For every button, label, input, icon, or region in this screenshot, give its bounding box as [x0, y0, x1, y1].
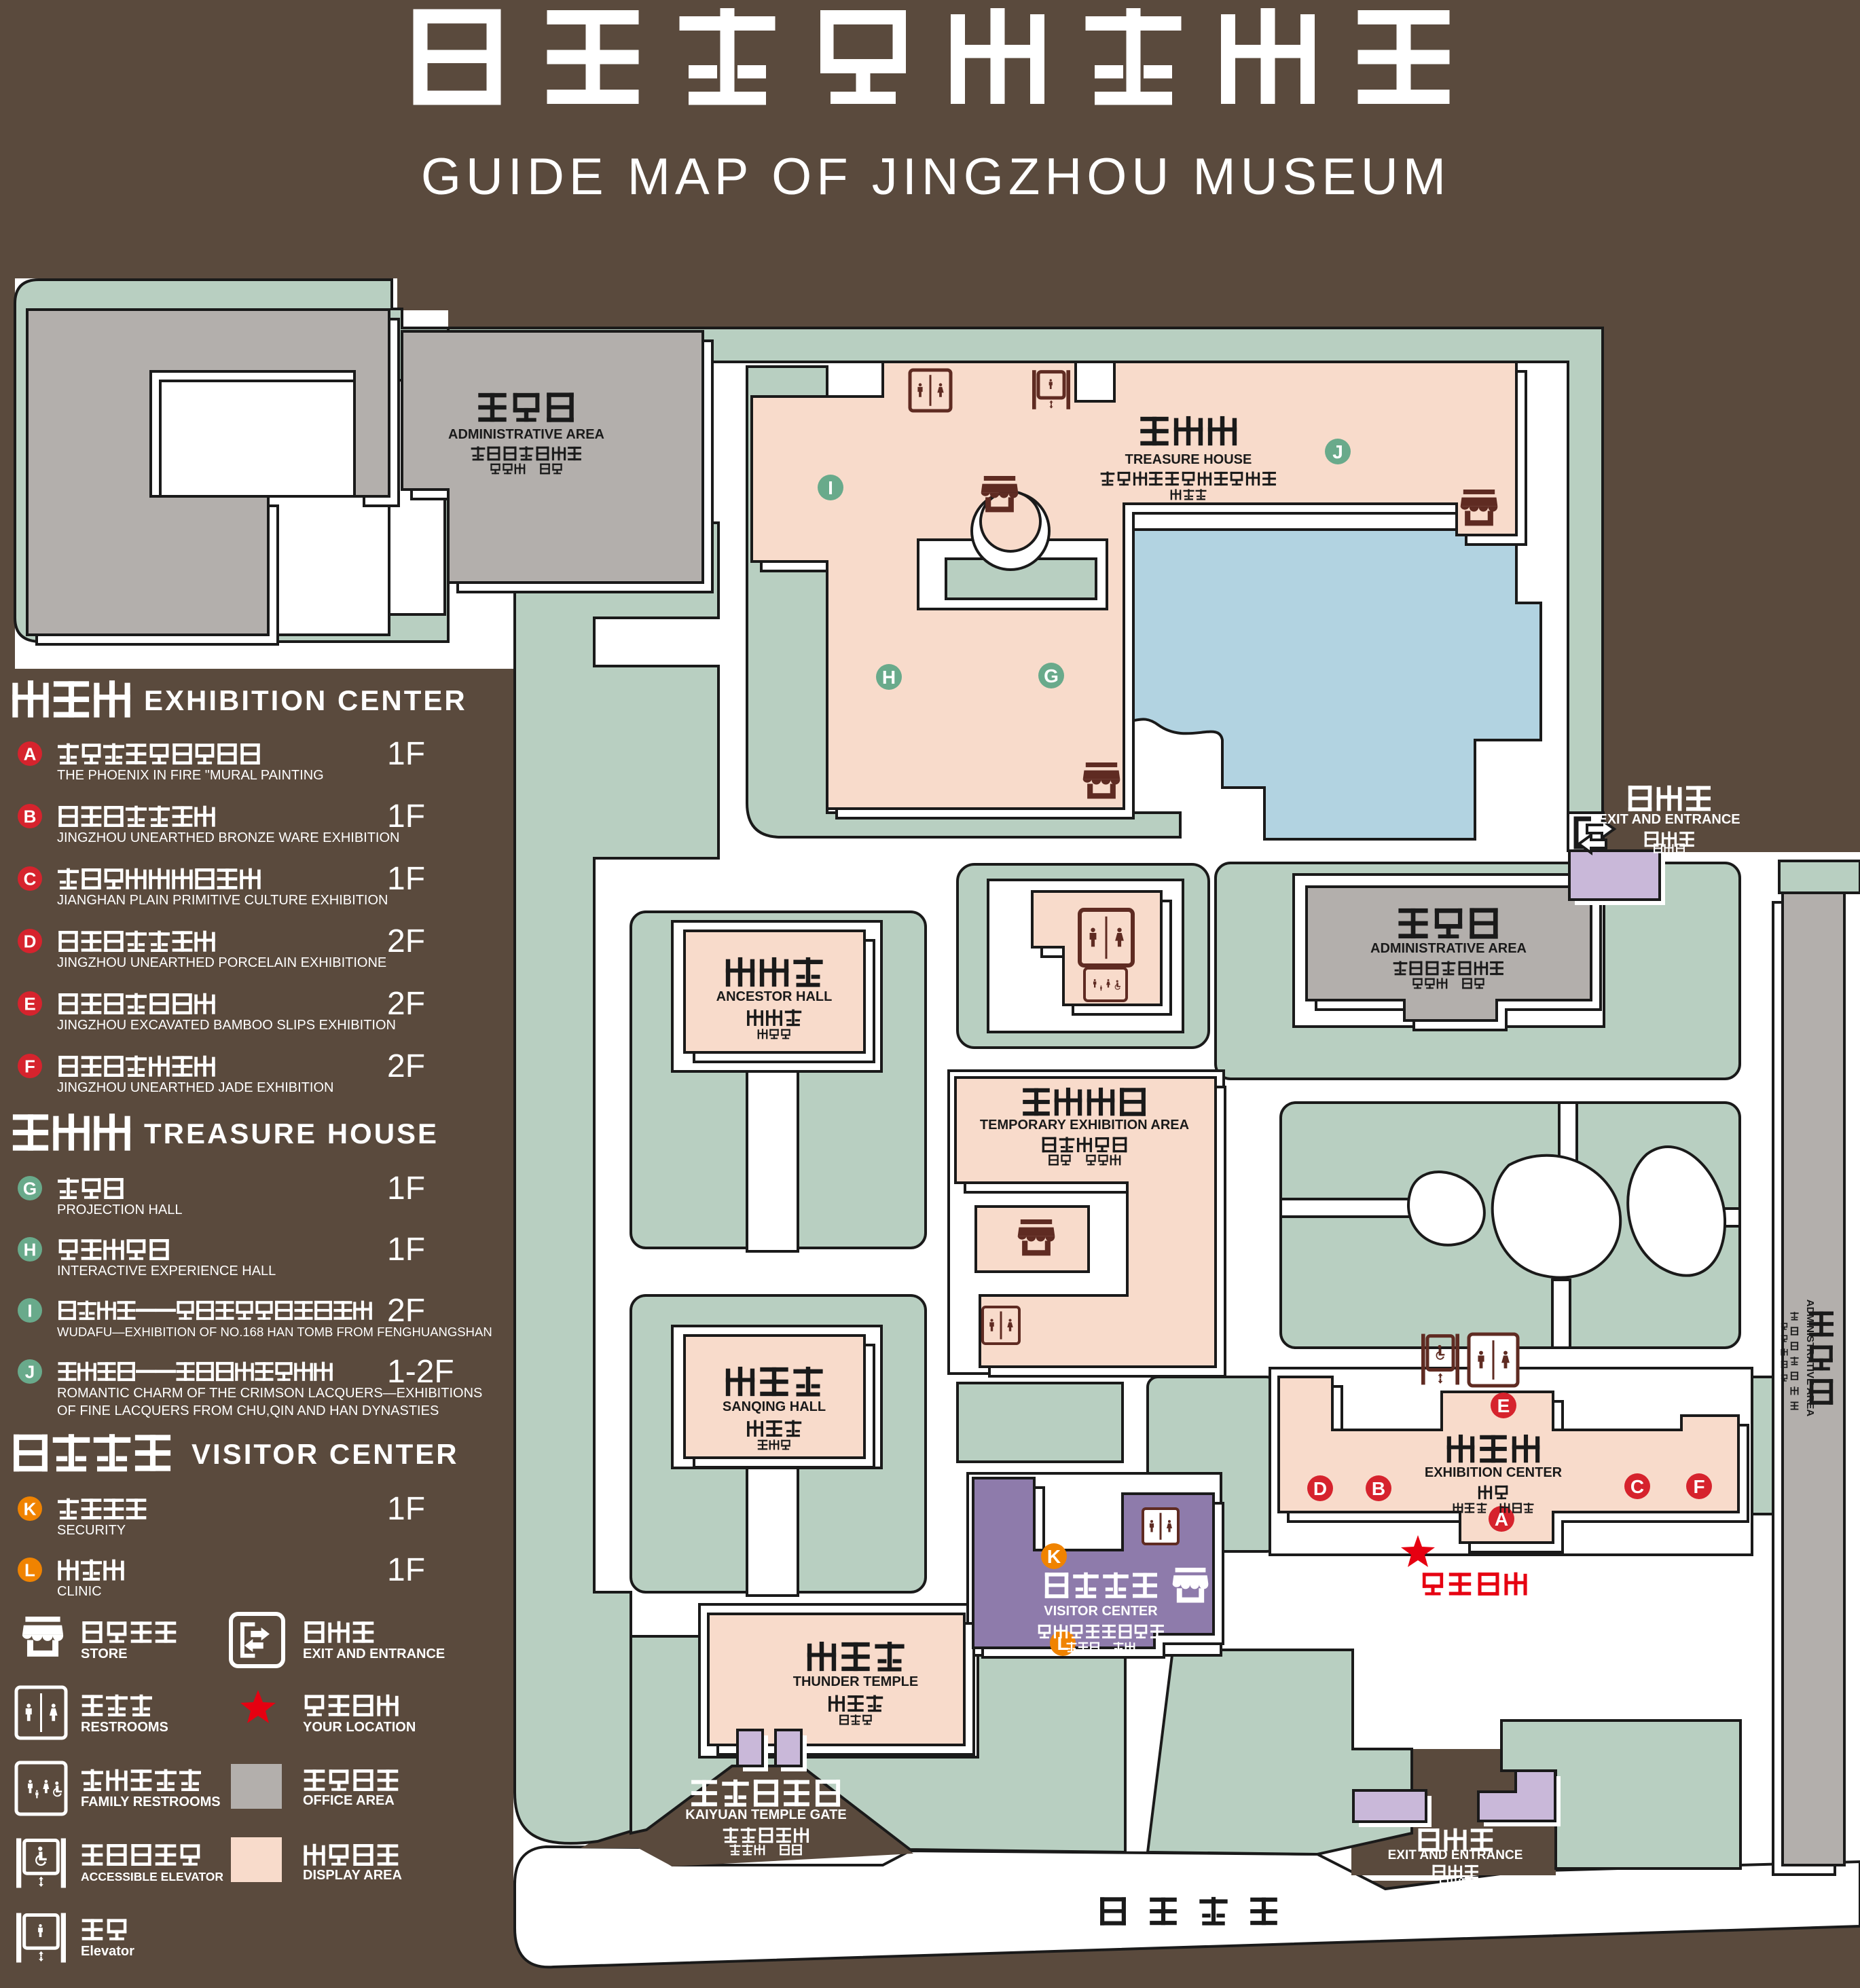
svg-text:1F: 1F — [387, 1171, 425, 1207]
svg-text:ADMINISTRATIVE AREA: ADMINISTRATIVE AREA — [448, 427, 604, 442]
svg-text:THUNDER TEMPLE: THUNDER TEMPLE — [793, 1674, 918, 1689]
svg-text:B: B — [24, 806, 37, 826]
svg-text:A: A — [1495, 1509, 1508, 1530]
svg-text:VISITOR CENTER: VISITOR CENTER — [192, 1438, 459, 1470]
svg-text:JINGZHOU UNEARTHED BRONZE WARE: JINGZHOU UNEARTHED BRONZE WARE EXHIBITIO… — [57, 830, 399, 845]
svg-text:D: D — [1313, 1478, 1327, 1499]
svg-text:2F: 2F — [387, 1293, 425, 1329]
svg-text:C: C — [1630, 1476, 1644, 1497]
svg-text:A: A — [24, 743, 37, 764]
svg-text:ANCESTOR HALL: ANCESTOR HALL — [716, 989, 833, 1004]
svg-text:WUDAFU—EXHIBITION OF NO.168 HA: WUDAFU—EXHIBITION OF NO.168 HAN TOMB FRO… — [57, 1325, 492, 1339]
svg-text:G: G — [1044, 665, 1059, 686]
svg-text:FAMILY RESTROOMS: FAMILY RESTROOMS — [81, 1794, 221, 1809]
svg-text:ADMINISTRATIVE AREA: ADMINISTRATIVE AREA — [1804, 1300, 1816, 1417]
svg-text:E: E — [24, 993, 35, 1014]
svg-text:B: B — [1372, 1478, 1385, 1499]
svg-text:TREASURE HOUSE: TREASURE HOUSE — [1125, 452, 1252, 467]
svg-text:F: F — [24, 1056, 35, 1076]
svg-text:2F: 2F — [387, 1048, 425, 1084]
svg-text:EXHIBITION CENTER: EXHIBITION CENTER — [144, 684, 467, 716]
svg-text:JIANGHAN PLAIN PRIMITIVE CULTU: JIANGHAN PLAIN PRIMITIVE CULTURE EXHIBIT… — [57, 893, 388, 908]
svg-text:JINGZHOU UNEARTHED PORCELAIN E: JINGZHOU UNEARTHED PORCELAIN EXHIBITIONE — [57, 955, 386, 970]
svg-text:PROJECTION HALL: PROJECTION HALL — [57, 1202, 182, 1217]
svg-text:L: L — [24, 1560, 35, 1580]
svg-text:J: J — [1332, 441, 1343, 462]
svg-text:1F: 1F — [387, 1232, 425, 1268]
svg-text:I: I — [27, 1300, 32, 1321]
svg-text:EXHIBITION CENTER: EXHIBITION CENTER — [1425, 1465, 1563, 1480]
svg-text:1F: 1F — [387, 1552, 425, 1588]
svg-text:H: H — [882, 667, 896, 688]
svg-text:C: C — [24, 868, 37, 889]
svg-text:TREASURE HOUSE: TREASURE HOUSE — [144, 1118, 439, 1149]
svg-text:E: E — [1497, 1395, 1510, 1416]
svg-text:G: G — [23, 1178, 37, 1198]
svg-text:K: K — [1047, 1546, 1061, 1567]
svg-text:OFFICE AREA: OFFICE AREA — [303, 1793, 395, 1808]
svg-text:YOUR LOCATION: YOUR LOCATION — [303, 1720, 416, 1735]
svg-text:I: I — [828, 477, 833, 498]
svg-text:K: K — [24, 1498, 37, 1519]
svg-text:STORE: STORE — [81, 1646, 128, 1661]
svg-text:1-2F: 1-2F — [387, 1354, 454, 1390]
svg-text:F: F — [1693, 1476, 1704, 1497]
svg-text:GUIDE MAP OF JINGZHOU MUSEUM: GUIDE MAP OF JINGZHOU MUSEUM — [421, 148, 1451, 206]
svg-text:J: J — [25, 1361, 35, 1382]
svg-text:SANQING HALL: SANQING HALL — [723, 1399, 826, 1414]
svg-text:OF FINE LACQUERS FROM CHU,QIN: OF FINE LACQUERS FROM CHU,QIN AND HAN DY… — [57, 1403, 439, 1418]
svg-text:ACCESSIBLE ELEVATOR: ACCESSIBLE ELEVATOR — [81, 1870, 223, 1883]
svg-text:DISPLAY AREA: DISPLAY AREA — [303, 1868, 402, 1883]
svg-text:1F: 1F — [387, 1491, 425, 1527]
svg-text:EXIT AND ENTRANCE: EXIT AND ENTRANCE — [1388, 1848, 1523, 1862]
svg-text:2F: 2F — [387, 923, 425, 959]
svg-text:2F: 2F — [387, 986, 425, 1022]
svg-text:JINGZHOU UNEARTHED JADE EXHIBI: JINGZHOU UNEARTHED JADE EXHIBITION — [57, 1080, 333, 1095]
svg-text:TEMPORARY EXHIBITION AREA: TEMPORARY EXHIBITION AREA — [980, 1118, 1189, 1133]
svg-text:1F: 1F — [387, 861, 425, 897]
svg-text:THE PHOENIX IN FIRE "MURAL PAI: THE PHOENIX IN FIRE "MURAL PAINTING — [57, 768, 324, 783]
svg-text:RESTROOMS: RESTROOMS — [81, 1720, 168, 1735]
svg-text:1F: 1F — [387, 798, 425, 834]
svg-text:EXIT AND ENTRANCE: EXIT AND ENTRANCE — [303, 1646, 445, 1661]
svg-text:1F: 1F — [387, 736, 425, 772]
svg-text:JINGZHOU EXCAVATED BAMBOO SLIP: JINGZHOU EXCAVATED BAMBOO SLIPS EXHIBITI… — [57, 1018, 396, 1033]
svg-text:VISITOR CENTER: VISITOR CENTER — [1044, 1604, 1158, 1619]
svg-text:D: D — [24, 931, 37, 951]
svg-text:EXIT AND ENTRANCE: EXIT AND ENTRANCE — [1598, 812, 1740, 827]
svg-text:INTERACTIVE EXPERIENCE HALL: INTERACTIVE EXPERIENCE HALL — [57, 1264, 276, 1278]
svg-text:CLINIC: CLINIC — [57, 1584, 102, 1599]
svg-text:Elevator: Elevator — [81, 1944, 134, 1959]
svg-text:KAIYUAN TEMPLE GATE: KAIYUAN TEMPLE GATE — [685, 1807, 846, 1822]
svg-text:ADMINISTRATIVE AREA: ADMINISTRATIVE AREA — [1370, 941, 1527, 956]
svg-text:SECURITY: SECURITY — [57, 1523, 126, 1538]
svg-text:H: H — [24, 1239, 37, 1259]
